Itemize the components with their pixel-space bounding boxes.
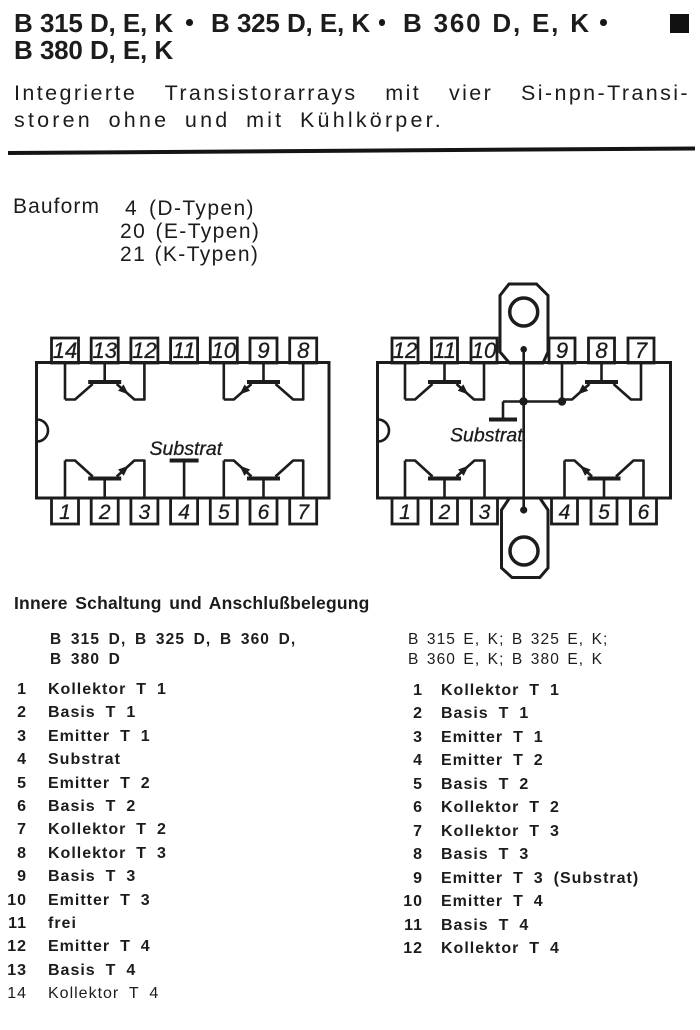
svg-text:10: 10 (212, 338, 237, 363)
svg-text:9: 9 (556, 338, 568, 363)
svg-text:Substrat: Substrat (150, 438, 224, 460)
svg-text:5: 5 (598, 501, 610, 524)
svg-text:11: 11 (433, 338, 456, 363)
svg-text:3: 3 (479, 501, 491, 524)
svg-text:6: 6 (258, 501, 270, 524)
svg-text:9: 9 (257, 338, 269, 363)
svg-text:1: 1 (399, 501, 411, 524)
svg-text:3: 3 (139, 501, 151, 524)
svg-text:12: 12 (393, 338, 417, 363)
svg-text:6: 6 (638, 501, 650, 524)
svg-text:1: 1 (59, 501, 71, 524)
svg-text:2: 2 (438, 501, 451, 524)
svg-text:Substrat: Substrat (450, 425, 524, 447)
svg-text:8: 8 (297, 338, 310, 363)
svg-text:7: 7 (297, 501, 310, 524)
svg-text:10: 10 (472, 338, 497, 363)
svg-text:2: 2 (98, 501, 111, 524)
svg-text:8: 8 (595, 338, 608, 363)
svg-text:11: 11 (173, 338, 196, 363)
svg-text:4: 4 (559, 501, 571, 524)
svg-text:12: 12 (132, 338, 156, 363)
svg-text:13: 13 (92, 338, 117, 363)
svg-text:7: 7 (635, 338, 648, 363)
svg-text:5: 5 (218, 501, 230, 524)
svg-text:4: 4 (178, 501, 190, 524)
svg-text:14: 14 (53, 338, 77, 363)
